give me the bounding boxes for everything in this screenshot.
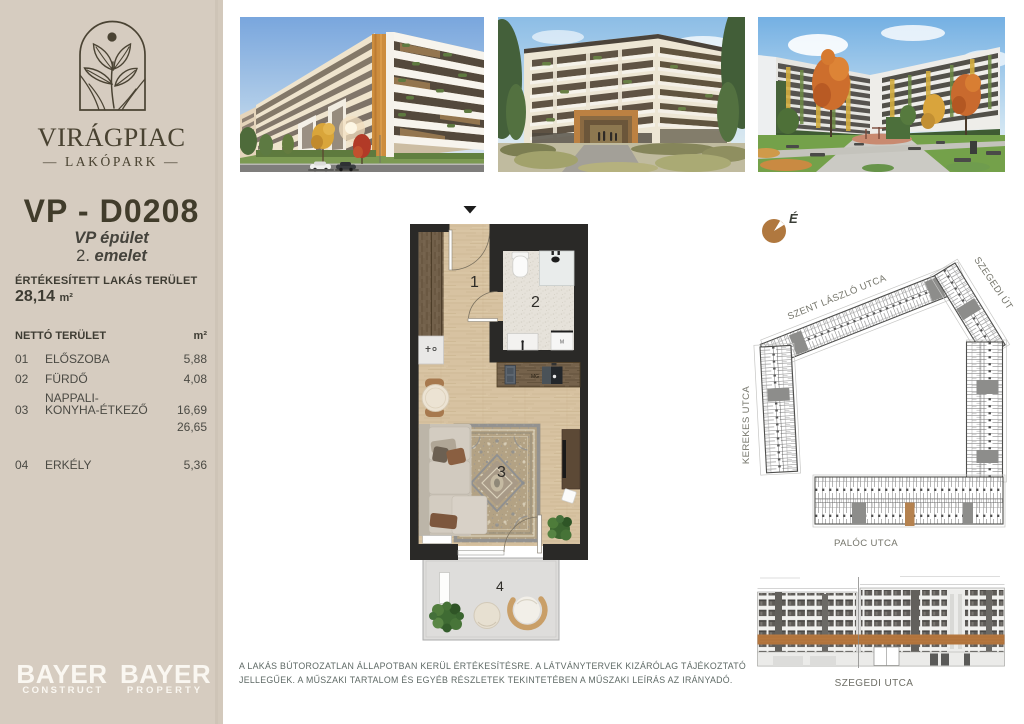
svg-text:4: 4 xyxy=(496,578,504,594)
svg-text:M: M xyxy=(560,340,564,346)
svg-text:KEREKES UTCA: KEREKES UTCA xyxy=(741,386,752,465)
svg-text:PALÓC UTCA: PALÓC UTCA xyxy=(834,538,898,549)
svg-text:2: 2 xyxy=(531,294,540,311)
svg-text:SZEGEDI UTCA: SZEGEDI UTCA xyxy=(835,678,914,689)
svg-text:1: 1 xyxy=(470,274,479,291)
svg-text:É: É xyxy=(789,211,798,226)
svg-text:3: 3 xyxy=(497,464,506,481)
svg-text:MG: MG xyxy=(531,374,539,380)
